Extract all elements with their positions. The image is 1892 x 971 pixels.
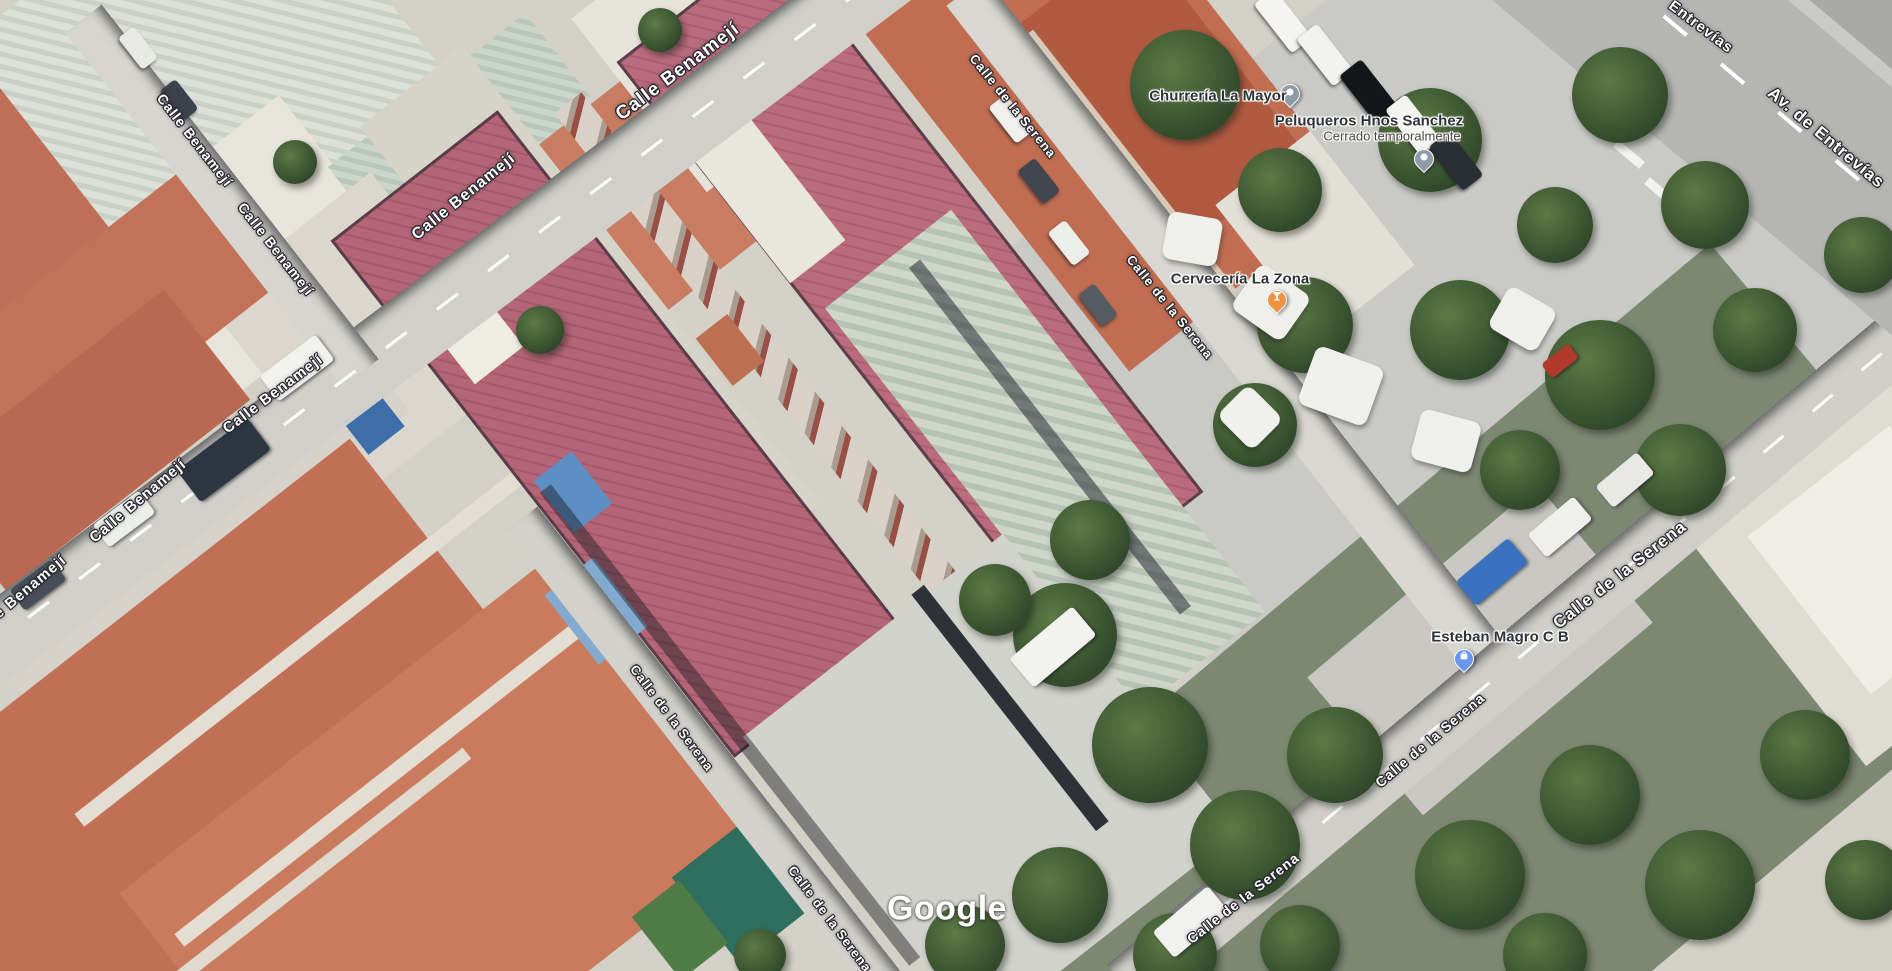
poi-pin[interactable] [1266, 288, 1288, 316]
street-label: Calle Benamejí [154, 90, 237, 189]
street-label: Calle Benamejí [86, 456, 189, 547]
street-label: Calle de la Serena [627, 662, 717, 774]
dot-icon [1287, 89, 1294, 96]
street-label: Calle Benamejí [612, 18, 744, 125]
poi-label[interactable]: Peluqueros Hnos Sanchez [1275, 113, 1463, 130]
street-label: Calle de la Serena [966, 51, 1059, 161]
street-label: Calle de la Serena [785, 863, 875, 971]
dot-icon [1421, 154, 1428, 161]
dot-icon [1287, 89, 1294, 96]
poi-status: Cerrado temporalmente [1323, 129, 1460, 144]
street-label: Calle de la Serena [1549, 517, 1690, 633]
poi-pin[interactable] [1453, 647, 1475, 675]
street-label: Calle Benamejí [235, 199, 318, 298]
street-label: Calle de la Serena [1184, 849, 1302, 946]
street-label: Calle Benamejí [0, 552, 70, 643]
poi-label[interactable]: Cervecería La Zona [1171, 271, 1309, 288]
street-label: Av. de Entrevías [1764, 83, 1889, 192]
map-labels-layer: Calle BenamejíCalle BenamejíCalle Bename… [0, 0, 1892, 971]
dot-icon [1421, 154, 1428, 161]
bag-icon [1459, 648, 1470, 666]
street-label: Calle Benamejí [409, 150, 520, 244]
street-label: Calle de la Serena [1372, 690, 1488, 791]
poi-pin[interactable] [1413, 147, 1435, 175]
drink-icon [1272, 289, 1283, 307]
street-label: Entrevías [1665, 0, 1736, 57]
street-label: Calle de la Serena [1123, 252, 1216, 362]
poi-label[interactable]: Churrería La Mayor [1149, 88, 1287, 105]
poi-label[interactable]: Esteban Magro C B [1431, 629, 1569, 646]
map-viewport[interactable]: Calle BenamejíCalle BenamejíCalle Bename… [0, 0, 1892, 971]
google-watermark-logo[interactable]: Google [887, 890, 1007, 929]
street-label: Calle Benamejí [220, 351, 327, 437]
